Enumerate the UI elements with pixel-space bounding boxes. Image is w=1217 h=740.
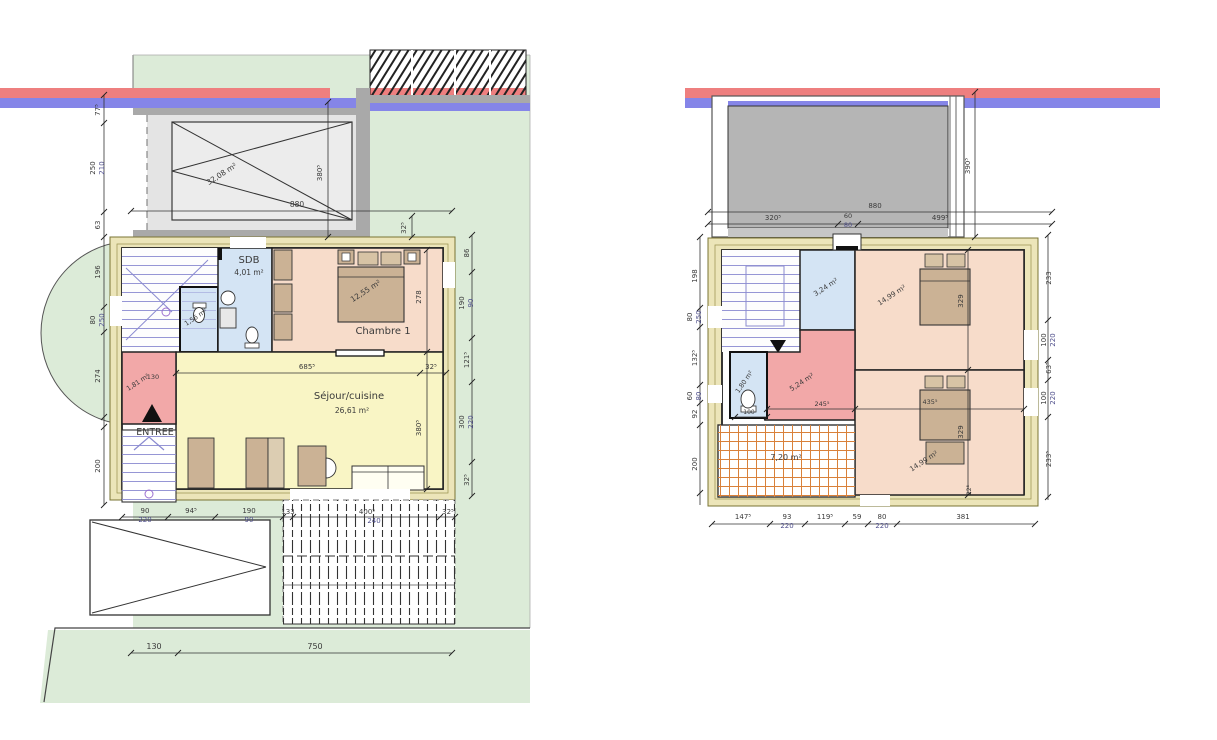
room-label: 7,20 m² <box>770 453 801 462</box>
dim-label: 86 <box>463 248 471 257</box>
exterior-stairs <box>122 430 176 502</box>
room-sejour-cuisine <box>176 350 443 490</box>
dim-label: 220 <box>467 415 475 428</box>
roof-terrace <box>712 96 964 237</box>
dim-label: 190 <box>458 296 466 309</box>
dim-label: 200 <box>691 457 699 470</box>
dim-label: 121⁵ <box>463 352 471 368</box>
dim-label: 220 <box>780 522 793 530</box>
dim-label: 233 <box>1045 271 1053 284</box>
dim-label: 90 <box>141 507 150 515</box>
dim-label: 133 <box>281 508 294 516</box>
dim-label: 59 <box>853 513 862 521</box>
dim-label: 22⁵ <box>966 484 973 495</box>
dim-label: 32⁵ <box>400 222 408 234</box>
dim-label: 100 <box>1040 391 1048 404</box>
dim-label: 380⁵ <box>316 165 324 181</box>
road-red-stripe <box>0 88 330 98</box>
dim-label: 250 <box>98 313 106 326</box>
room-label: 4,01 m² <box>234 268 263 277</box>
dim-label: 196 <box>94 265 102 279</box>
dim-label: 94⁵ <box>185 507 197 515</box>
dim-label: 300 <box>458 415 466 428</box>
dim-label: 32⁵ <box>425 363 437 371</box>
dim-label: 63 <box>94 221 102 230</box>
dim-label: 233⁵ <box>1045 451 1053 467</box>
room-label: Séjour/cuisine <box>314 390 384 402</box>
dim-label: 329 <box>957 425 965 438</box>
window-gap <box>443 262 455 288</box>
dim-label: 80 <box>844 221 852 229</box>
bay-window-gap <box>290 489 410 500</box>
dim-label: 390⁵ <box>964 158 972 174</box>
dim-label: 80 <box>686 313 694 322</box>
dim-label: 32⁵ <box>463 474 471 486</box>
dim-label: 220 <box>138 516 151 524</box>
dim-label: 93 <box>783 513 792 521</box>
dim-label: 685⁵ <box>299 363 315 371</box>
dim-label: 210 <box>98 161 106 174</box>
dim-label: 60 <box>686 392 694 401</box>
dim-label: 220 <box>1049 391 1057 404</box>
dim-label: 90 <box>467 299 475 308</box>
window-gap <box>1024 388 1038 416</box>
dim-label: 880 <box>290 200 305 209</box>
dim-label: 132⁵ <box>691 350 699 366</box>
dim-label: 63⁵ <box>1045 362 1053 374</box>
dim-label: 92 <box>691 410 699 419</box>
dim-label: 274 <box>94 369 102 383</box>
dim-label: 119⁵ <box>817 513 833 521</box>
dim-label: 90 <box>245 516 254 524</box>
floor-plan-canvas: SDB4,01 m²Chambre 112,55 m²Séjour/cuisin… <box>0 0 1217 740</box>
window-gap <box>708 306 722 328</box>
dim-label: 380⁵ <box>415 420 423 436</box>
room-chambre-top <box>855 250 1024 370</box>
dim-label: 80 <box>878 513 887 521</box>
dim-label: 435⁵ <box>922 398 937 406</box>
dim-label: 100 <box>743 409 755 416</box>
dim-label: 80 <box>695 392 703 401</box>
room-label: SDB <box>239 255 260 266</box>
hatched-area <box>370 50 526 96</box>
window-gap <box>230 237 266 248</box>
dim-label: 220 <box>875 522 888 530</box>
site-lawn-bottom <box>40 630 530 703</box>
dim-label: 240 <box>367 517 380 525</box>
room-label: Chambre 1 <box>355 326 410 337</box>
dim-label: 77⁵ <box>94 104 102 116</box>
bed-icon <box>338 267 404 322</box>
parking-space <box>90 520 270 615</box>
driveway <box>133 88 370 237</box>
dim-label: 880 <box>868 202 881 210</box>
sink-icon <box>221 291 235 305</box>
dim-label: 130 <box>146 642 161 651</box>
road-blue-stripe <box>0 98 356 108</box>
dim-label: 32⁵ <box>442 508 454 516</box>
dim-label: 250 <box>89 161 97 174</box>
dim-label: 381 <box>956 513 969 521</box>
dim-label: 278 <box>415 290 423 303</box>
left-plan <box>0 50 530 703</box>
floor-plan-page: SDB4,01 m²Chambre 112,55 m²Séjour/cuisin… <box>0 0 1217 740</box>
dim-label: 80 <box>89 316 97 325</box>
dim-label: 130 <box>147 373 159 381</box>
room-stairs-upper <box>722 250 800 353</box>
dim-label: 198 <box>691 269 699 282</box>
dim-label: 60 <box>844 212 852 220</box>
dim-label: 329 <box>957 294 965 307</box>
room-chambre-bottom <box>855 370 1024 495</box>
toilet-icon <box>741 390 755 408</box>
dim-label: 250 <box>695 310 703 323</box>
dim-label: 147⁵ <box>735 513 751 521</box>
window-gap <box>708 385 722 403</box>
dim-label: 220 <box>1049 333 1057 346</box>
window-gap <box>1024 330 1038 360</box>
room-label: ENTREE <box>136 427 174 438</box>
dim-label: 200 <box>94 459 102 472</box>
dim-label: 400⁵ <box>359 508 375 516</box>
window-gap <box>860 495 890 506</box>
window-gap <box>110 296 122 326</box>
dim-label: 100 <box>1040 333 1048 346</box>
dim-label: 750 <box>307 642 322 651</box>
dim-label: 190 <box>242 507 255 515</box>
dim-label: 499⁵ <box>932 214 948 222</box>
toilet-icon <box>246 327 258 343</box>
room-label: 26,61 m² <box>335 406 369 415</box>
dim-label: 320⁵ <box>765 214 781 222</box>
dim-label: 245⁵ <box>814 400 829 408</box>
